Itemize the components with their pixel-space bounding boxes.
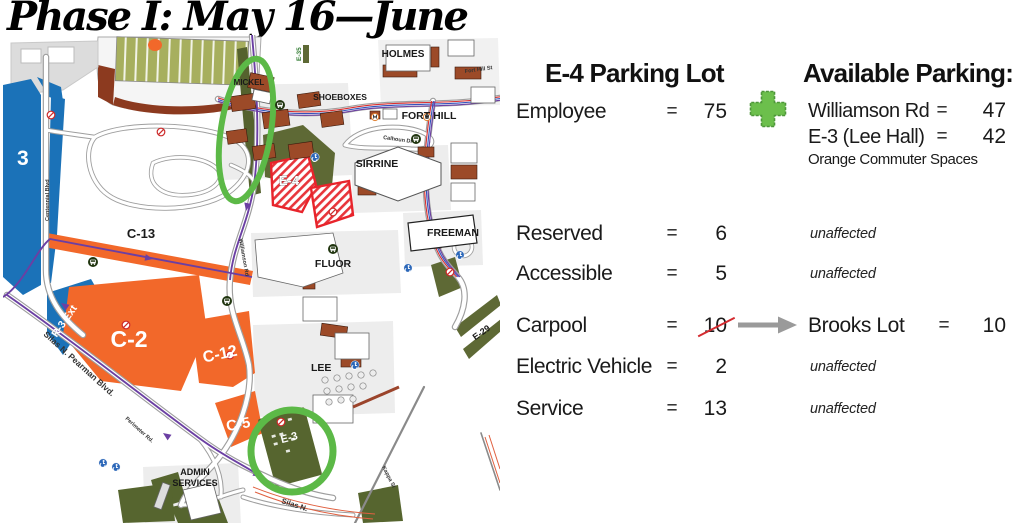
- brooks-eq: =: [932, 315, 956, 337]
- map-road-perimeter: Perimeter Rd.: [124, 416, 155, 445]
- no-parking-icon: [277, 418, 285, 426]
- map-label-forthill: FORT HILL: [402, 110, 457, 122]
- accessible-icon: [99, 459, 107, 468]
- service-unaffected: unaffected: [810, 401, 876, 417]
- map-label-e35: E-35: [296, 47, 303, 61]
- row-reserved-value: 6: [683, 222, 727, 246]
- accessible-unaffected: unaffected: [810, 266, 876, 282]
- no-parking-icon: [47, 111, 55, 119]
- map-label-freeman: FREEMAN: [427, 227, 479, 239]
- map-label-c13: C-13: [127, 226, 155, 241]
- map-label-sirrine: SIRRINE: [356, 158, 399, 170]
- row-accessible-eq: =: [660, 263, 684, 285]
- row-electric-value: 2: [683, 355, 727, 379]
- row-reserved-label: Reserved: [516, 222, 603, 246]
- map-label-e4: E-4: [279, 173, 300, 188]
- available-row1-label: Williamson Rd: [808, 100, 929, 123]
- right-heading: Available Parking:: [803, 58, 1013, 89]
- available-row2-eq: =: [930, 126, 954, 148]
- accessible-icon: [311, 153, 319, 162]
- available-row2-value: 42: [958, 125, 1006, 149]
- reserved-unaffected: unaffected: [810, 226, 876, 242]
- bus-icon: [275, 100, 285, 110]
- map-label-fluor: FLUOR: [315, 258, 352, 270]
- map-label-lot3: 3: [17, 147, 29, 170]
- plus-icon: [748, 89, 788, 129]
- row-service-eq: =: [660, 398, 684, 420]
- bus-icon: [328, 244, 338, 254]
- no-parking-icon: [446, 268, 454, 276]
- map-label-holmes: HOLMES: [382, 49, 425, 60]
- row-service-value: 13: [683, 397, 727, 421]
- slide: Phase I: May 16—June: [0, 0, 1024, 523]
- map-label-admin2: SERVICES: [172, 478, 217, 488]
- map-label-shoeboxes: SHOEBOXES: [313, 92, 367, 102]
- row-electric-label: Electric Vehicle: [516, 355, 652, 379]
- row-employee-value: 75: [683, 100, 727, 124]
- row-carpool-eq: =: [660, 315, 684, 337]
- carpool-struck-value: 10: [704, 314, 727, 338]
- brooks-label: Brooks Lot: [808, 314, 904, 338]
- row-electric-eq: =: [660, 356, 684, 378]
- no-parking-icon: [329, 208, 337, 216]
- map-road-kappa: Kappa St: [380, 465, 396, 489]
- row-employee-eq: =: [660, 101, 684, 123]
- transit-m-icon: [371, 113, 378, 120]
- no-parking-icon: [157, 128, 165, 136]
- bus-icon: [222, 296, 232, 306]
- electric-unaffected: unaffected: [810, 359, 876, 375]
- tiger-paw: [148, 39, 162, 51]
- map-label-c2: C-2: [110, 326, 147, 352]
- map-road-centennial: Centennial Blvd: [45, 179, 51, 221]
- bus-icon: [88, 257, 98, 267]
- row-carpool-value: 10: [683, 314, 727, 338]
- page-title: Phase I: May 16—June: [7, 0, 467, 40]
- available-row1-eq: =: [930, 100, 954, 122]
- map-label-mickel: MICKEL: [234, 78, 265, 87]
- map-label-lee: LEE: [311, 362, 331, 374]
- map-label-admin1: ADMIN: [180, 467, 210, 477]
- accessible-icon: [456, 251, 464, 260]
- row-reserved-eq: =: [660, 223, 684, 245]
- accessible-icon: [351, 361, 359, 370]
- accessible-icon: [404, 264, 412, 273]
- available-row1-value: 47: [958, 99, 1006, 123]
- accessible-icon: [112, 463, 120, 472]
- available-note: Orange Commuter Spaces: [808, 151, 978, 168]
- row-carpool-label: Carpool: [516, 314, 587, 338]
- row-service-label: Service: [516, 397, 583, 421]
- football-field: [115, 37, 248, 86]
- row-accessible-label: Accessible: [516, 262, 612, 286]
- campus-map: 3 C-13 R-3 Ext C-2 C-12 C-5 E-3 E-4 E-29…: [3, 35, 500, 523]
- arrow-right-icon: [736, 314, 798, 336]
- left-heading: E-4 Parking Lot: [545, 58, 724, 89]
- available-row2-label: E-3 (Lee Hall): [808, 126, 924, 149]
- map-road-calhoun: Calhoun Dr: [383, 135, 414, 145]
- row-accessible-value: 5: [683, 262, 727, 286]
- brooks-value: 10: [958, 314, 1006, 338]
- row-employee-label: Employee: [516, 100, 606, 124]
